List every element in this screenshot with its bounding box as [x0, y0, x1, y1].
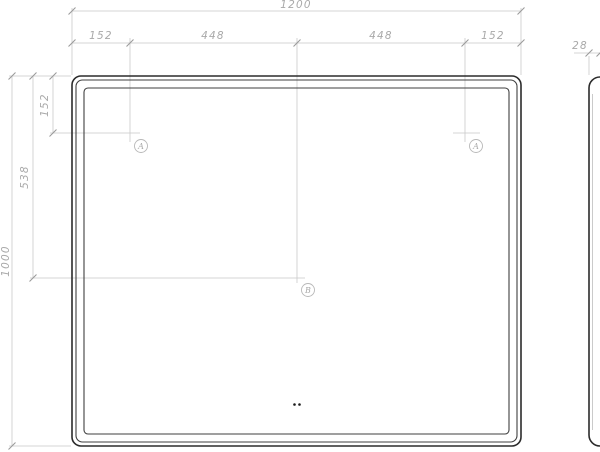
side-view-outline: [589, 77, 600, 446]
label-side-thickness: 28: [572, 40, 588, 52]
label-top-to-sensor: 152: [39, 93, 51, 117]
side-view: [589, 77, 600, 446]
label-segment-right-152: 152: [481, 30, 505, 42]
front-view: [72, 76, 521, 446]
callouts: A A B: [135, 140, 483, 297]
label-segment-left-152: 152: [89, 30, 113, 42]
callout-a-left: A: [135, 140, 148, 153]
front-view-frame-edge: [76, 80, 517, 442]
callout-b-center: B: [302, 284, 315, 297]
dimension-lines: [9, 8, 600, 446]
callout-a-right-letter: A: [472, 142, 479, 151]
dimension-labels: 1200 152 448 448 152 1000 538 152 28: [0, 0, 588, 277]
label-top-to-center: 538: [19, 165, 31, 189]
touch-dot-left: [293, 403, 296, 406]
dimension-ticks: [9, 8, 600, 450]
label-segment-left-448: 448: [201, 30, 225, 42]
callout-a-right: A: [470, 140, 483, 153]
technical-drawing-canvas: 1200 152 448 448 152 1000 538 152 28 A A…: [0, 0, 600, 452]
touch-sensor-dots: [293, 403, 301, 406]
label-overall-width: 1200: [280, 0, 312, 11]
front-view-inner-led-edge: [84, 88, 509, 434]
touch-dot-right: [298, 403, 301, 406]
front-view-outer-edge: [72, 76, 521, 446]
mirror-dimension-drawing: 1200 152 448 448 152 1000 538 152 28 A A…: [0, 0, 600, 452]
callout-a-left-letter: A: [137, 142, 144, 151]
callout-b-letter: B: [304, 286, 311, 295]
label-segment-right-448: 448: [369, 30, 393, 42]
label-overall-height: 1000: [0, 245, 12, 277]
